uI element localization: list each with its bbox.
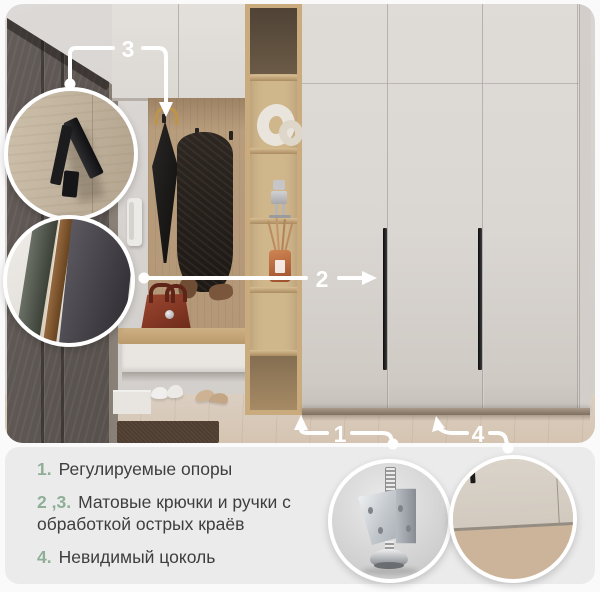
bench-drawer (122, 344, 252, 372)
handle-tip (469, 459, 475, 483)
umbrella-handle (155, 107, 178, 125)
shelf-divider (250, 148, 297, 154)
bracket-hole (398, 505, 403, 512)
diffuser-reeds (273, 220, 287, 254)
feature-item: 4.Невидимый цоколь (37, 546, 347, 568)
wardrobe-floor-shadow (302, 415, 590, 421)
wardrobe-handle (478, 228, 482, 370)
foot-base (374, 562, 404, 569)
diffuser-bottle (269, 250, 291, 282)
bag-handle (165, 284, 187, 302)
feature-item: 2 ,3.Матовые крючки и ручки с обработкой… (37, 491, 347, 535)
doormat (117, 421, 219, 443)
door-top-rail (5, 14, 111, 91)
coat-hook (229, 131, 233, 140)
shelf-divider (250, 287, 297, 293)
door-seam (555, 455, 560, 523)
robot-figurine (267, 180, 293, 218)
invisible-plinth-closeup-inset (449, 455, 577, 583)
upper-cabinets (112, 4, 246, 101)
adjustable-foot-closeup-inset (328, 459, 452, 583)
hook-stem (62, 170, 80, 197)
wardrobe-handle (383, 228, 387, 370)
feature-number: 2 ,3. (37, 492, 71, 512)
bracket-side (396, 485, 416, 547)
feature-number: 1. (37, 459, 52, 479)
shelf-divider (250, 350, 297, 356)
feature-text: Невидимый цоколь (59, 547, 216, 567)
feature-list: 1.Регулируемые опоры 2 ,3.Матовые крючки… (37, 458, 347, 579)
bracket-hole (368, 507, 373, 514)
feature-text: Регулируемые опоры (59, 459, 233, 479)
product-annotation-card: 1.Регулируемые опоры 2 ,3.Матовые крючки… (0, 0, 600, 592)
wardrobe-door-seam (387, 4, 389, 415)
bench-top (118, 328, 252, 344)
recessed-plinth (302, 408, 590, 415)
feature-number: 4. (37, 547, 52, 567)
bench-shadow (122, 372, 252, 382)
hanging-coat (177, 132, 233, 292)
feature-text: Матовые крючки и ручки с обработкой остр… (37, 492, 291, 534)
feature-item: 1.Регулируемые опоры (37, 458, 347, 480)
bag-charm (165, 310, 174, 319)
wardrobe-side-panel (579, 4, 591, 415)
shelf-bottom-cell (250, 356, 297, 410)
hook-closeup-inset (4, 87, 138, 221)
door-bottom-panel (449, 455, 577, 532)
bracket-hole (406, 525, 411, 532)
wardrobe-door-seam (482, 4, 484, 415)
wardrobe-top-seam (302, 83, 590, 85)
bracket-hole (378, 527, 383, 534)
cabinet-seam (178, 4, 179, 98)
shelf-divider (250, 75, 297, 81)
shelf-top-cell (250, 8, 297, 74)
wardrobe (302, 4, 590, 415)
baseboard (113, 390, 151, 414)
handle-edge-closeup-inset (3, 215, 135, 347)
sneaker (151, 387, 168, 399)
